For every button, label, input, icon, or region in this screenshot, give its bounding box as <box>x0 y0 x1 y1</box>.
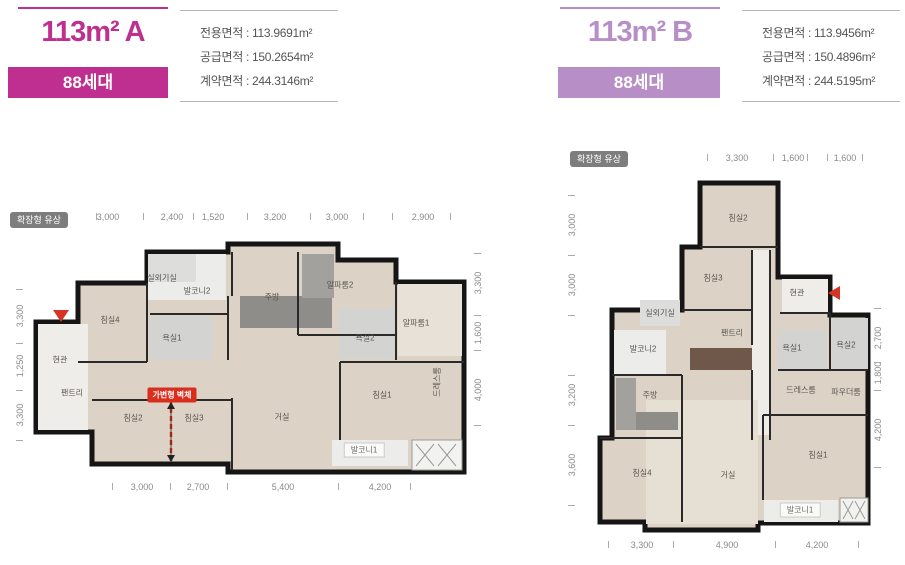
dim-label-b: 4,200 <box>873 419 883 442</box>
dim-label-b: 3,000 <box>567 274 577 297</box>
dim-tick-a <box>474 350 481 351</box>
room-label-b: 거실 <box>721 470 736 481</box>
room-label-a: 침실3 <box>184 413 203 424</box>
dim-label-a: 2,400 <box>161 212 184 222</box>
dim-tick-a <box>247 213 248 220</box>
dim-tick-b <box>874 390 881 391</box>
dim-label-a: 4,000 <box>473 379 483 402</box>
area-line: 전용면적 : 113.9456m² <box>762 24 900 41</box>
floor-plan-a <box>30 235 470 480</box>
dim-tick-b <box>707 154 708 161</box>
dim-label-a: 3,200 <box>264 212 287 222</box>
dim-label-a: 3,300 <box>473 272 483 295</box>
area-line: 계약면적 : 244.3146m² <box>200 72 338 89</box>
unit-a-title: 113m² A <box>18 16 168 49</box>
dim-tick-a <box>16 289 23 290</box>
dim-label-a: 1,600 <box>473 322 483 345</box>
dim-label-a: 3,300 <box>15 305 25 328</box>
room-label-b: 실외기실 <box>645 308 674 319</box>
unit-a-households-badge: 88세대 <box>8 67 168 98</box>
dim-tick-b <box>568 375 575 376</box>
room-label-b: 주방 <box>643 390 658 401</box>
dim-label-b: 3,600 <box>567 454 577 477</box>
dim-tick-a <box>16 343 23 344</box>
dim-label-a: 1,250 <box>15 355 25 378</box>
dim-tick-a <box>363 213 364 220</box>
unit-a-area-info: 전용면적 : 113.9691m² 공급면적 : 150.2654m² 계약면적… <box>180 10 338 102</box>
room-label-a: 주방 <box>265 292 280 303</box>
dim-tick-b <box>568 195 575 196</box>
dim-tick-a <box>16 390 23 391</box>
room-label-b: 발코니2 <box>630 344 657 355</box>
dim-tick-a <box>193 213 194 220</box>
area-line: 공급면적 : 150.4896m² <box>762 48 900 65</box>
room-label-a: 침실2 <box>123 413 142 424</box>
dim-tick-b <box>807 154 808 161</box>
room-label-a: 침실4 <box>100 315 119 326</box>
room-label-b: 침실4 <box>632 468 651 479</box>
dim-label-b: 1,800 <box>873 362 883 385</box>
room-label-b: 침실2 <box>728 213 747 224</box>
floor-plan-page: 113m² A 88세대 전용면적 : 113.9691m² 공급면적 : 15… <box>0 0 905 565</box>
room-label-b: 드레스룸 <box>786 385 815 396</box>
room-label-a: 알파룸2 <box>327 280 354 291</box>
dim-tick-a <box>474 253 481 254</box>
room-label-a: 발코니2 <box>184 286 211 297</box>
dim-tick-a <box>410 483 411 490</box>
dim-tick-b <box>874 362 881 363</box>
room-label-a: 침실1 <box>372 390 391 401</box>
unit-b-area-info: 전용면적 : 113.9456m² 공급면적 : 150.4896m² 계약면적… <box>742 10 900 102</box>
dim-tick-b <box>568 505 575 506</box>
dim-label-a: 2,900 <box>412 212 435 222</box>
dim-tick-b <box>673 541 674 548</box>
dim-label-a: 5,400 <box>272 482 295 492</box>
dim-tick-b <box>568 315 575 316</box>
dim-tick-a <box>474 425 481 426</box>
dim-tick-b <box>568 255 575 256</box>
movable-wall-badge: 가변형 벽체 <box>147 388 196 403</box>
dim-tick-a <box>474 315 481 316</box>
dim-tick-a <box>227 483 228 490</box>
room-label-b: 욕실1 <box>782 343 801 354</box>
dim-tick-a <box>310 213 311 220</box>
dim-label-b: 1,600 <box>782 153 805 163</box>
dim-label-a: 4,200 <box>369 482 392 492</box>
unit-b-title: 113m² B <box>560 16 720 49</box>
dim-tick-a <box>338 483 339 490</box>
dim-tick-b <box>862 154 863 161</box>
room-label-a: 현관 <box>53 355 68 366</box>
dim-tick-b <box>858 541 859 548</box>
dim-tick-a <box>170 483 171 490</box>
room-label-a: 실외기실 <box>147 273 176 284</box>
room-label-a: 욕실2 <box>355 333 374 344</box>
room-label-a: 팬트리 <box>61 388 83 399</box>
dim-tick-b <box>568 425 575 426</box>
dim-tick-b <box>608 541 609 548</box>
area-line: 계약면적 : 244.5195m² <box>762 72 900 89</box>
unit-b-title-rule <box>560 7 720 9</box>
dim-label-a: 3,000 <box>326 212 349 222</box>
unit-b-households-badge: 88세대 <box>558 67 720 98</box>
dim-label-b: 3,000 <box>567 214 577 237</box>
room-label-b: 침실1 <box>808 450 827 461</box>
unit-a-title-rule <box>18 7 168 9</box>
dim-tick-a <box>16 440 23 441</box>
room-label-a: 드레스룸 <box>432 367 443 396</box>
room-label-b: 파우더룸 <box>831 387 860 398</box>
dim-tick-a <box>112 483 113 490</box>
dim-label-b: 4,200 <box>806 540 829 550</box>
dim-label-b: 2,700 <box>873 327 883 350</box>
room-label-b: 발코니1 <box>780 503 821 518</box>
extension-badge-b: 확장형 유상 <box>570 151 628 167</box>
dim-tick-b <box>775 541 776 548</box>
dim-label-a: 3,000 <box>131 482 154 492</box>
room-label-a: 알파룸1 <box>403 318 430 329</box>
dim-tick-a <box>96 213 97 220</box>
dim-tick-a <box>450 213 451 220</box>
dim-label-b: 1,600 <box>834 153 857 163</box>
room-label-b: 침실3 <box>703 273 722 284</box>
dim-tick-a <box>392 213 393 220</box>
floor-plan-b <box>590 175 875 535</box>
room-label-a: 욕실1 <box>162 333 181 344</box>
room-label-b: 욕실2 <box>836 340 855 351</box>
extension-badge-a: 확장형 유상 <box>10 212 68 228</box>
room-label-a: 발코니1 <box>344 443 385 458</box>
dim-label-a: 3,300 <box>15 404 25 427</box>
room-label-a: 거실 <box>275 412 290 423</box>
dim-label-b: 4,900 <box>716 540 739 550</box>
area-line: 공급면적 : 150.2654m² <box>200 48 338 65</box>
dim-label-b: 3,200 <box>567 384 577 407</box>
dim-tick-b <box>827 154 828 161</box>
dim-label-a: 3,000 <box>97 212 120 222</box>
dim-label-b: 3,300 <box>726 153 749 163</box>
dim-tick-b <box>773 154 774 161</box>
dim-tick-a <box>143 213 144 220</box>
area-line: 전용면적 : 113.9691m² <box>200 24 338 41</box>
dim-label-b: 3,300 <box>631 540 654 550</box>
dim-label-a: 1,520 <box>202 212 225 222</box>
room-label-b: 현관 <box>790 288 805 299</box>
dim-tick-b <box>874 308 881 309</box>
room-label-b: 팬트리 <box>721 328 743 339</box>
dim-tick-b <box>874 467 881 468</box>
dim-label-a: 2,700 <box>187 482 210 492</box>
